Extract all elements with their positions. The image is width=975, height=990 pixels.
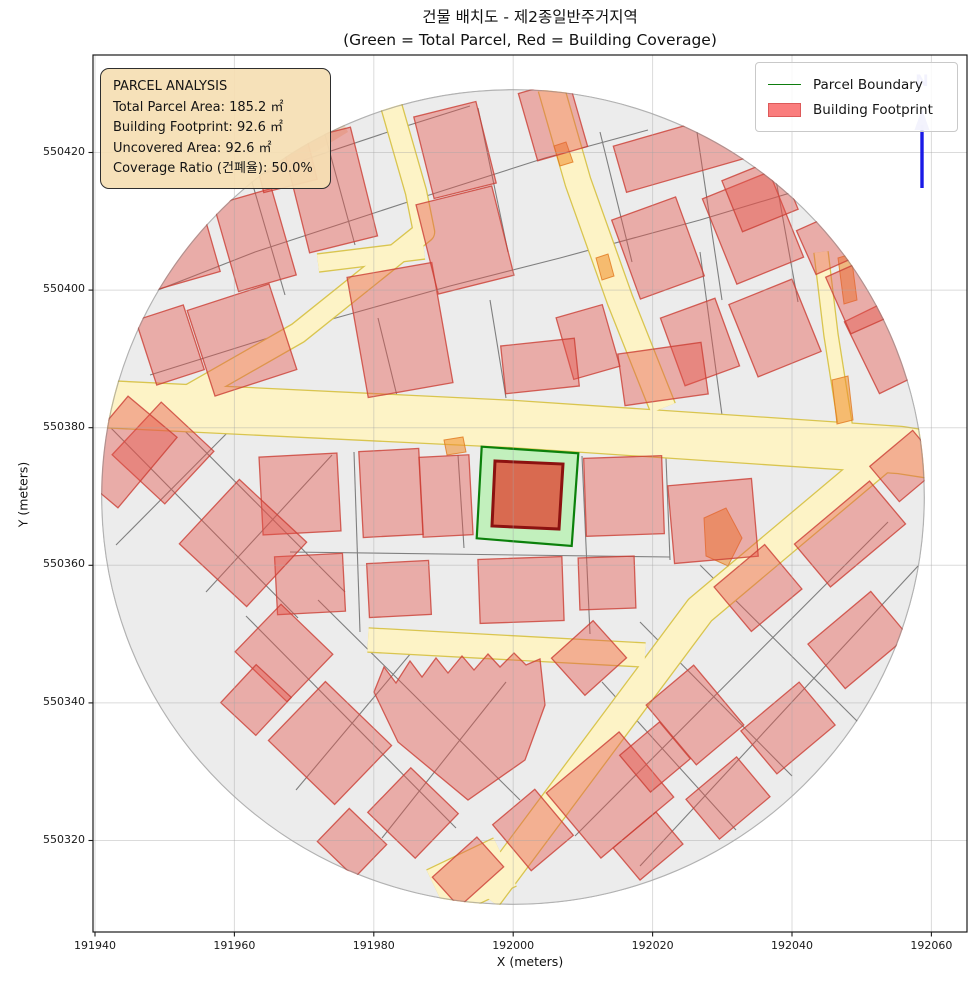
x-tick-label: 192060 (896, 939, 966, 952)
matplotlib-figure: N 건물 배치도 - 제2종일반주거지역 (Green = Total Parc… (0, 0, 975, 990)
y-tick-label: 550320 (13, 833, 85, 846)
legend-item-parcel-boundary: Parcel Boundary (768, 72, 947, 97)
building-polygon (419, 455, 473, 538)
building-footprint-patch-swatch (768, 103, 801, 117)
parcel-analysis-line: Building Footprint: 92.6 ㎡ (113, 118, 318, 139)
x-tick-label: 191940 (60, 939, 130, 952)
parcel-analysis-line: Total Parcel Area: 185.2 ㎡ (113, 98, 318, 119)
x-tick-label: 191980 (339, 939, 409, 952)
legend-label: Building Footprint (813, 102, 933, 118)
parcel-analysis-box: PARCEL ANALYSIS Total Parcel Area: 185.2… (100, 68, 331, 189)
building-polygon (478, 557, 564, 624)
orange-building-polygon (444, 437, 466, 455)
y-axis-label: Y (meters) (16, 425, 31, 565)
target-building-footprint (492, 461, 563, 529)
building-polygon (367, 560, 432, 617)
building-polygon (501, 338, 580, 393)
building-polygon (578, 556, 636, 610)
y-tick-label: 550340 (13, 695, 85, 708)
legend: Parcel Boundary Building Footprint (755, 62, 958, 132)
plot-title-line1: 건물 배치도 - 제2종일반주거지역 (93, 6, 967, 29)
y-tick-label: 550380 (13, 420, 85, 433)
y-tick-label: 550420 (13, 145, 85, 158)
parcel-boundary-line-swatch (768, 84, 801, 85)
parcel-analysis-title: PARCEL ANALYSIS (113, 77, 318, 98)
building-polygon (668, 478, 758, 563)
plot-title: 건물 배치도 - 제2종일반주거지역 (Green = Total Parcel… (93, 6, 967, 52)
y-tick-label: 550360 (13, 557, 85, 570)
x-axis-label: X (meters) (93, 954, 967, 969)
parcel-analysis-line: Coverage Ratio (건폐율): 50.0% (113, 159, 318, 180)
legend-label: Parcel Boundary (813, 77, 923, 93)
parcel-analysis-line: Uncovered Area: 92.6 ㎡ (113, 139, 318, 160)
building-polygon (618, 342, 708, 405)
x-tick-label: 192040 (757, 939, 827, 952)
legend-item-building-footprint: Building Footprint (768, 97, 947, 122)
x-tick-label: 192000 (478, 939, 548, 952)
plot-title-line2: (Green = Total Parcel, Red = Building Co… (93, 29, 967, 52)
x-tick-label: 192020 (618, 939, 688, 952)
building-polygon (359, 448, 423, 537)
y-tick-label: 550400 (13, 282, 85, 295)
x-tick-label: 191960 (199, 939, 269, 952)
